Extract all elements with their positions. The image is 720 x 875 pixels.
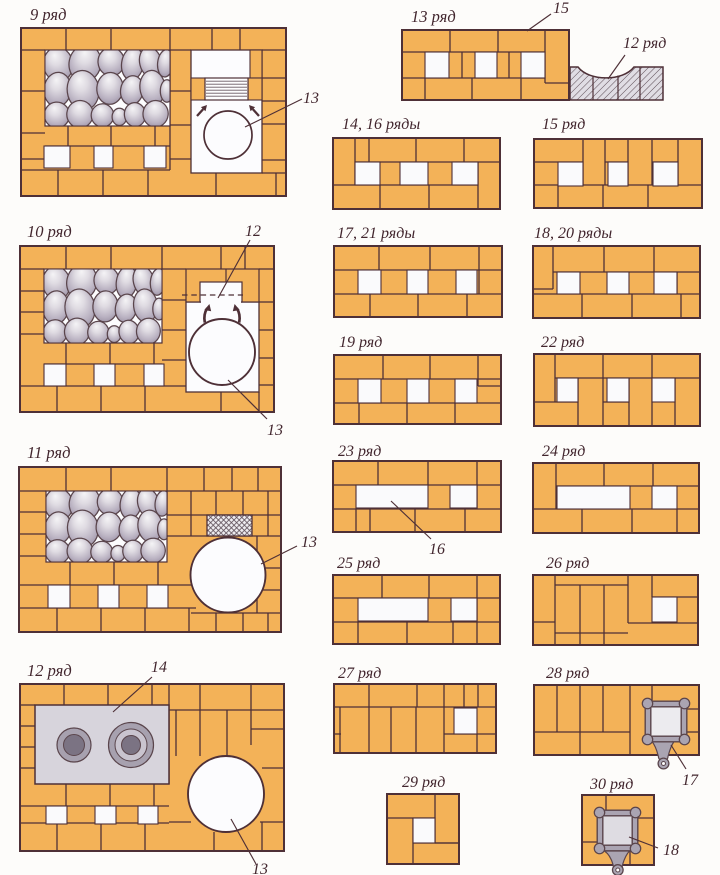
svg-text:12 ряд: 12 ряд: [623, 35, 666, 52]
svg-text:17, 21 ряды: 17, 21 ряды: [337, 225, 415, 242]
svg-text:18: 18: [663, 842, 679, 859]
svg-text:10 ряд: 10 ряд: [27, 222, 72, 241]
svg-text:17: 17: [682, 772, 699, 789]
svg-text:22 ряд: 22 ряд: [541, 334, 584, 351]
svg-text:25 ряд: 25 ряд: [337, 555, 380, 572]
svg-text:18, 20 ряды: 18, 20 ряды: [534, 225, 612, 242]
svg-text:27 ряд: 27 ряд: [338, 665, 381, 682]
svg-text:16: 16: [429, 541, 445, 558]
svg-text:12 ряд: 12 ряд: [27, 661, 72, 680]
svg-text:15: 15: [553, 0, 569, 17]
svg-text:11 ряд: 11 ряд: [27, 443, 70, 462]
svg-text:13: 13: [252, 861, 268, 875]
svg-text:28 ряд: 28 ряд: [546, 665, 589, 682]
svg-text:23 ряд: 23 ряд: [338, 443, 381, 460]
svg-text:12: 12: [245, 223, 261, 240]
svg-text:14: 14: [151, 659, 167, 676]
svg-text:13: 13: [267, 422, 283, 439]
svg-text:30 ряд: 30 ряд: [589, 776, 633, 793]
svg-text:15 ряд: 15 ряд: [542, 116, 585, 133]
svg-text:24 ряд: 24 ряд: [542, 443, 585, 460]
svg-text:13 ряд: 13 ряд: [411, 7, 456, 26]
svg-text:13: 13: [303, 90, 319, 107]
svg-text:29 ряд: 29 ряд: [402, 774, 445, 791]
svg-text:14, 16 ряды: 14, 16 ряды: [342, 116, 420, 133]
svg-text:9 ряд: 9 ряд: [30, 5, 66, 24]
svg-text:26 ряд: 26 ряд: [546, 555, 589, 572]
svg-text:19 ряд: 19 ряд: [339, 334, 382, 351]
svg-text:13: 13: [301, 534, 317, 551]
